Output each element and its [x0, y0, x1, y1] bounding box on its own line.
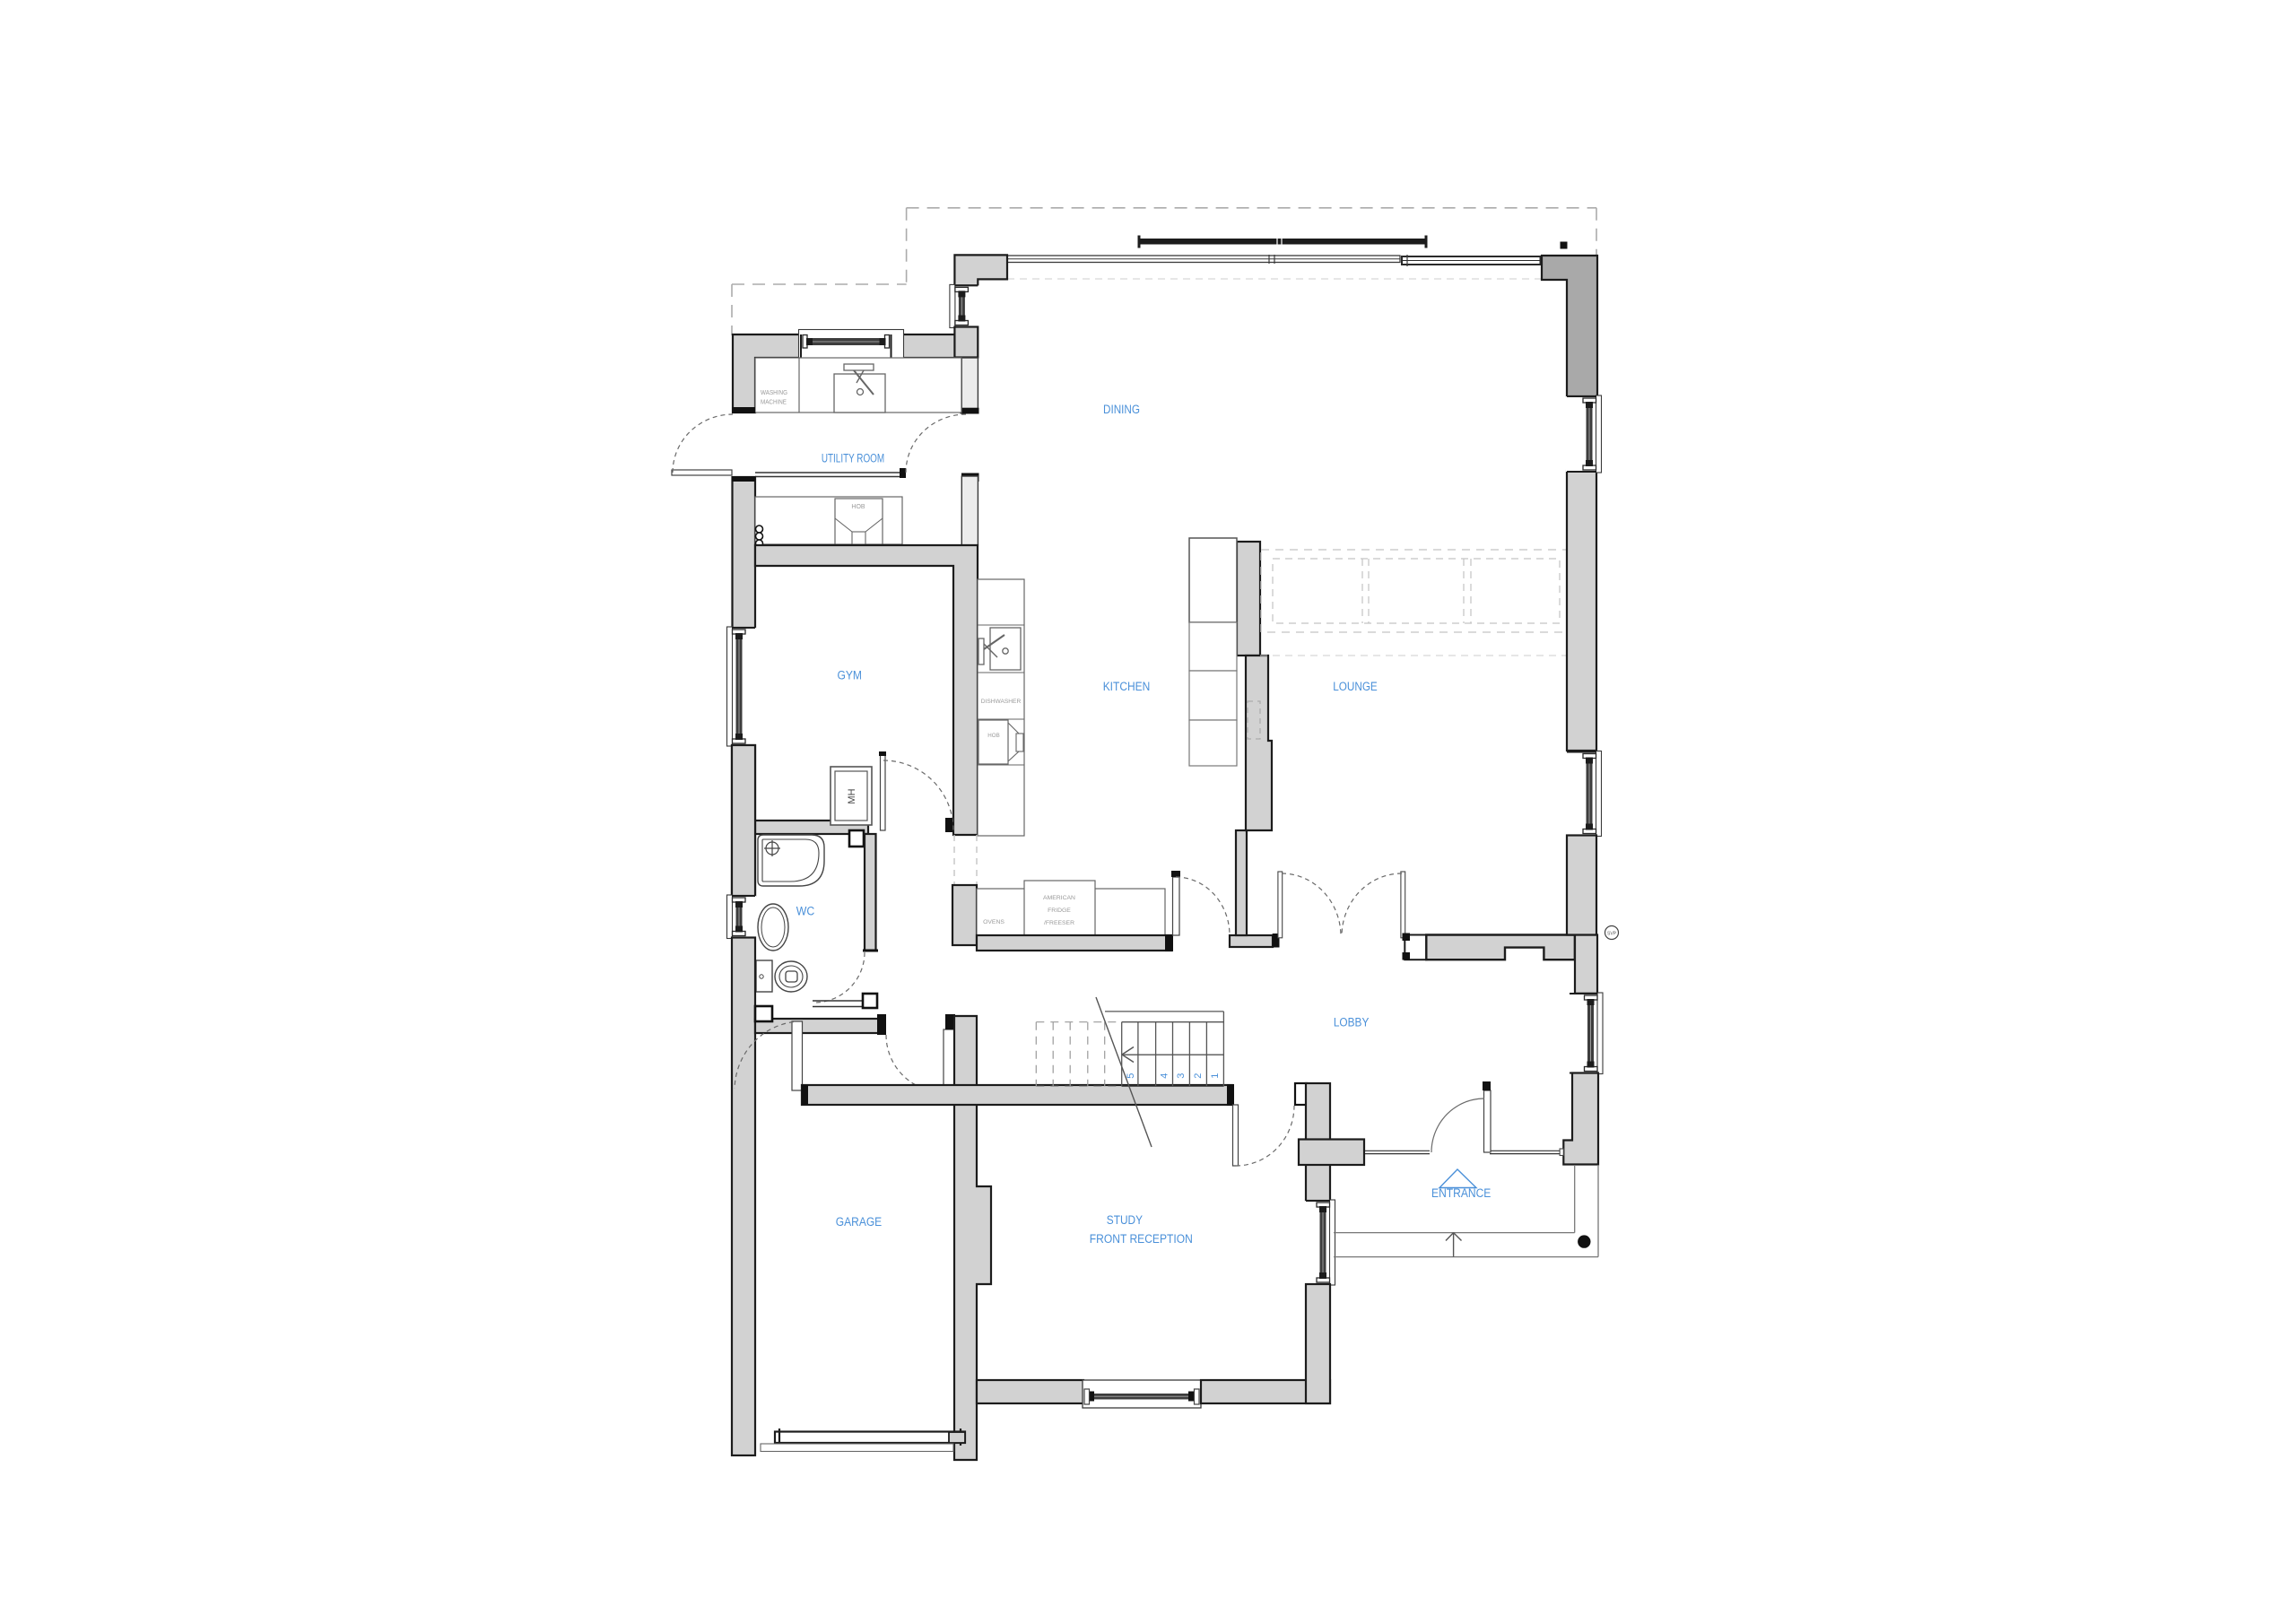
- svg-text:3: 3: [1176, 1073, 1187, 1079]
- svg-text:WASHING: WASHING: [761, 390, 787, 396]
- svg-text:DINING: DINING: [1103, 403, 1140, 416]
- svg-text:LOBBY: LOBBY: [1334, 1016, 1370, 1029]
- svg-text:MACHINE: MACHINE: [761, 400, 787, 406]
- svg-text:OVENS: OVENS: [983, 919, 1004, 925]
- svg-text:STUDY: STUDY: [1107, 1213, 1143, 1227]
- svg-text:GYM: GYM: [837, 669, 862, 682]
- svg-text:ENTRANCE: ENTRANCE: [1431, 1186, 1491, 1200]
- svg-text:AMERICAN: AMERICAN: [1043, 895, 1075, 901]
- svg-text:DISHWASHER: DISHWASHER: [981, 699, 1022, 705]
- svg-text:KITCHEN: KITCHEN: [1103, 680, 1151, 693]
- svg-text:5: 5: [1126, 1073, 1136, 1079]
- svg-text:/FREESER: /FREESER: [1044, 920, 1074, 926]
- svg-text:1: 1: [1210, 1073, 1221, 1079]
- svg-text:UTILITY ROOM: UTILITY ROOM: [822, 452, 884, 465]
- svg-text:WC: WC: [796, 905, 815, 918]
- svg-text:FRIDGE: FRIDGE: [1048, 908, 1071, 914]
- svg-text:2: 2: [1193, 1073, 1204, 1079]
- svg-text:HOB: HOB: [987, 733, 999, 739]
- svg-text:HOB: HOB: [851, 504, 865, 510]
- svg-text:MH: MH: [847, 788, 857, 803]
- svg-text:LOUNGE: LOUNGE: [1333, 680, 1378, 693]
- svg-text:4: 4: [1160, 1073, 1170, 1079]
- svg-text:GARAGE: GARAGE: [836, 1215, 882, 1229]
- svg-text:SVP: SVP: [1607, 932, 1617, 937]
- svg-text:FRONT RECEPTION: FRONT RECEPTION: [1090, 1232, 1193, 1246]
